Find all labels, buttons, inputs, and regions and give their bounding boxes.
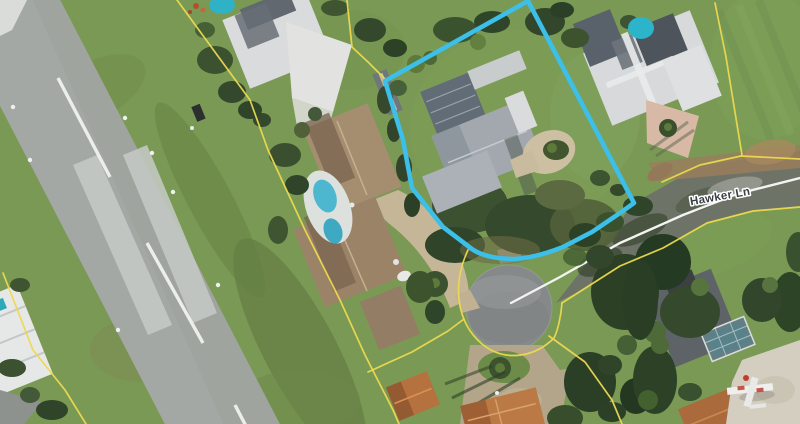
edge-marker <box>28 158 32 162</box>
tree <box>238 101 262 119</box>
edge-marker <box>116 328 120 332</box>
edge-marker <box>190 126 194 130</box>
tree <box>433 17 477 43</box>
palm-tree <box>617 335 637 355</box>
tree <box>561 28 589 48</box>
tree <box>586 245 614 269</box>
palm-tree <box>651 336 669 354</box>
tree <box>268 216 288 244</box>
edge-marker <box>171 190 175 194</box>
tree <box>294 122 310 138</box>
palm-tree <box>547 143 557 153</box>
bush <box>20 387 40 403</box>
garden-feature <box>193 3 199 9</box>
garden-feature <box>201 8 206 13</box>
tree <box>389 80 407 96</box>
garden-feature <box>188 10 192 14</box>
edge-marker <box>11 105 15 109</box>
bush <box>36 400 68 420</box>
palm-tree <box>638 390 658 410</box>
tree <box>285 175 309 195</box>
palm-tree <box>664 123 672 131</box>
airplane-marking <box>737 386 744 391</box>
edge-marker <box>216 283 220 287</box>
tree-mass <box>660 286 720 338</box>
palm-tree <box>762 277 778 293</box>
bush <box>10 278 30 292</box>
garden-statue <box>393 259 399 265</box>
tree <box>406 271 434 303</box>
tree <box>218 81 246 103</box>
aerial-map-view: Hawker Ln <box>0 0 800 424</box>
airplane-nose <box>743 375 749 381</box>
aerial-map-canvas[interactable]: Hawker Ln <box>0 0 800 424</box>
edge-marker <box>150 151 154 155</box>
tree <box>563 248 587 266</box>
tree <box>354 18 386 42</box>
palm-tree <box>678 383 702 401</box>
shrub-mass <box>535 180 585 210</box>
tree <box>590 170 610 186</box>
tree <box>598 355 622 375</box>
palm-tree <box>470 34 486 50</box>
palm-tree <box>691 278 709 296</box>
pool <box>628 17 654 39</box>
edge-marker <box>123 116 127 120</box>
tree <box>598 402 626 422</box>
airplane-marking <box>756 388 763 393</box>
tree <box>383 39 407 57</box>
garden-statue <box>495 391 499 395</box>
tree-mass <box>622 260 658 340</box>
tree <box>321 0 349 16</box>
tree <box>308 107 322 121</box>
tree <box>425 300 445 324</box>
tree <box>550 2 574 18</box>
